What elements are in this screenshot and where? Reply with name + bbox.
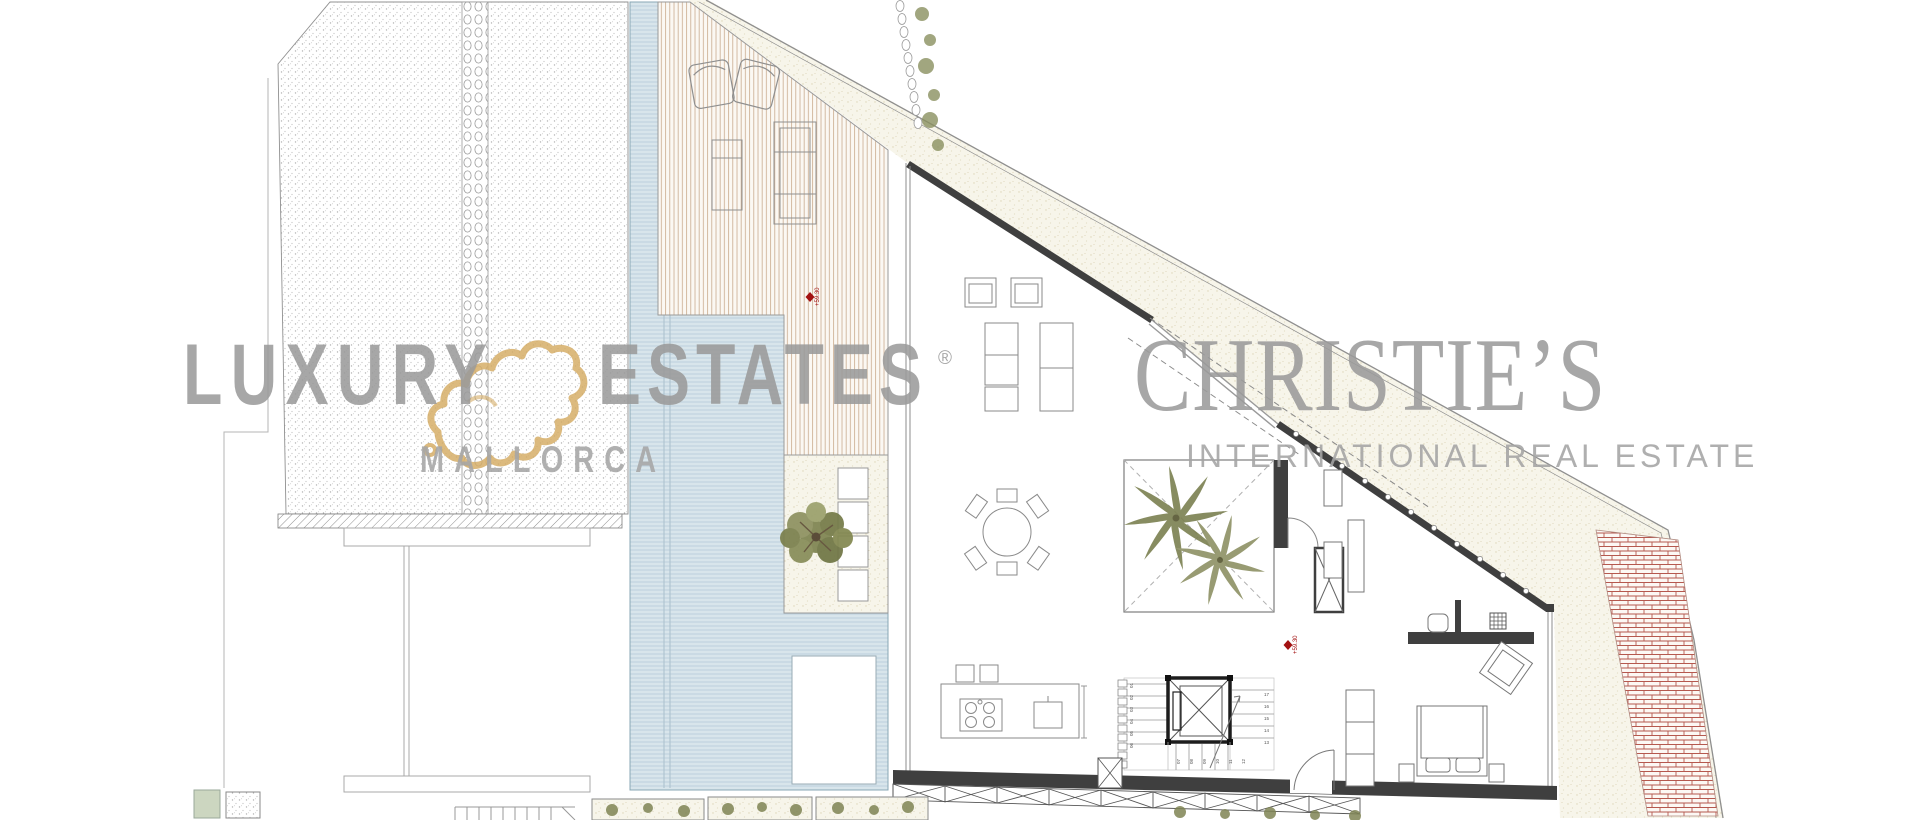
svg-text:09: 09 <box>1202 758 1207 764</box>
palm-courtyard <box>1124 460 1280 620</box>
garden-square <box>194 790 220 818</box>
svg-text:12: 12 <box>1241 758 1246 764</box>
svg-text:15: 15 <box>1264 716 1270 721</box>
shower-drain <box>1490 613 1506 629</box>
registered-trademark-icon: ® <box>938 349 952 368</box>
nightstand <box>1489 764 1504 782</box>
watermark-word-estates: ESTATES <box>598 332 928 418</box>
svg-text:01: 01 <box>1129 682 1134 688</box>
elevator <box>1165 675 1233 745</box>
watermark-christies-subtitle: INTERNATIONAL REAL ESTATE <box>1186 440 1758 472</box>
garden-fence <box>455 807 575 820</box>
svg-text:06: 06 <box>1129 742 1134 748</box>
toilet <box>1428 614 1448 632</box>
gravel-square <box>226 792 260 818</box>
nightstand <box>1399 764 1414 782</box>
lower-terrace <box>344 528 590 792</box>
svg-text:08: 08 <box>1189 758 1194 764</box>
svg-text:+59.30: +59.30 <box>815 287 821 306</box>
svg-text:04: 04 <box>1129 718 1134 724</box>
svg-text:05: 05 <box>1129 730 1134 736</box>
pool-platform <box>792 656 876 784</box>
wardrobe <box>1346 690 1374 786</box>
floor-plan-page: 01 02 03 04 05 06 07 08 09 10 11 12 17 1… <box>0 0 1920 820</box>
svg-text:13: 13 <box>1264 740 1270 745</box>
svg-text:14: 14 <box>1264 728 1270 733</box>
svg-text:03: 03 <box>1129 706 1134 712</box>
svg-text:16: 16 <box>1264 704 1270 709</box>
svg-text:11: 11 <box>1228 759 1233 764</box>
svg-text:17: 17 <box>1264 692 1270 697</box>
neighbour-boundary-lines <box>224 78 268 788</box>
watermark-christies-title: CHRISTIE’S <box>1134 322 1606 427</box>
svg-text:07: 07 <box>1176 758 1181 764</box>
watermark-word-mallorca: MALLORCA <box>420 441 666 478</box>
tree-courtyard <box>780 455 888 613</box>
sink <box>1034 702 1062 728</box>
svg-text:02: 02 <box>1129 694 1134 700</box>
svg-text:10: 10 <box>1215 758 1220 764</box>
retaining-wall <box>278 514 622 528</box>
svg-text:+59.30: +59.30 <box>1293 635 1299 654</box>
watermark-word-luxury: LUXURY <box>183 332 495 418</box>
